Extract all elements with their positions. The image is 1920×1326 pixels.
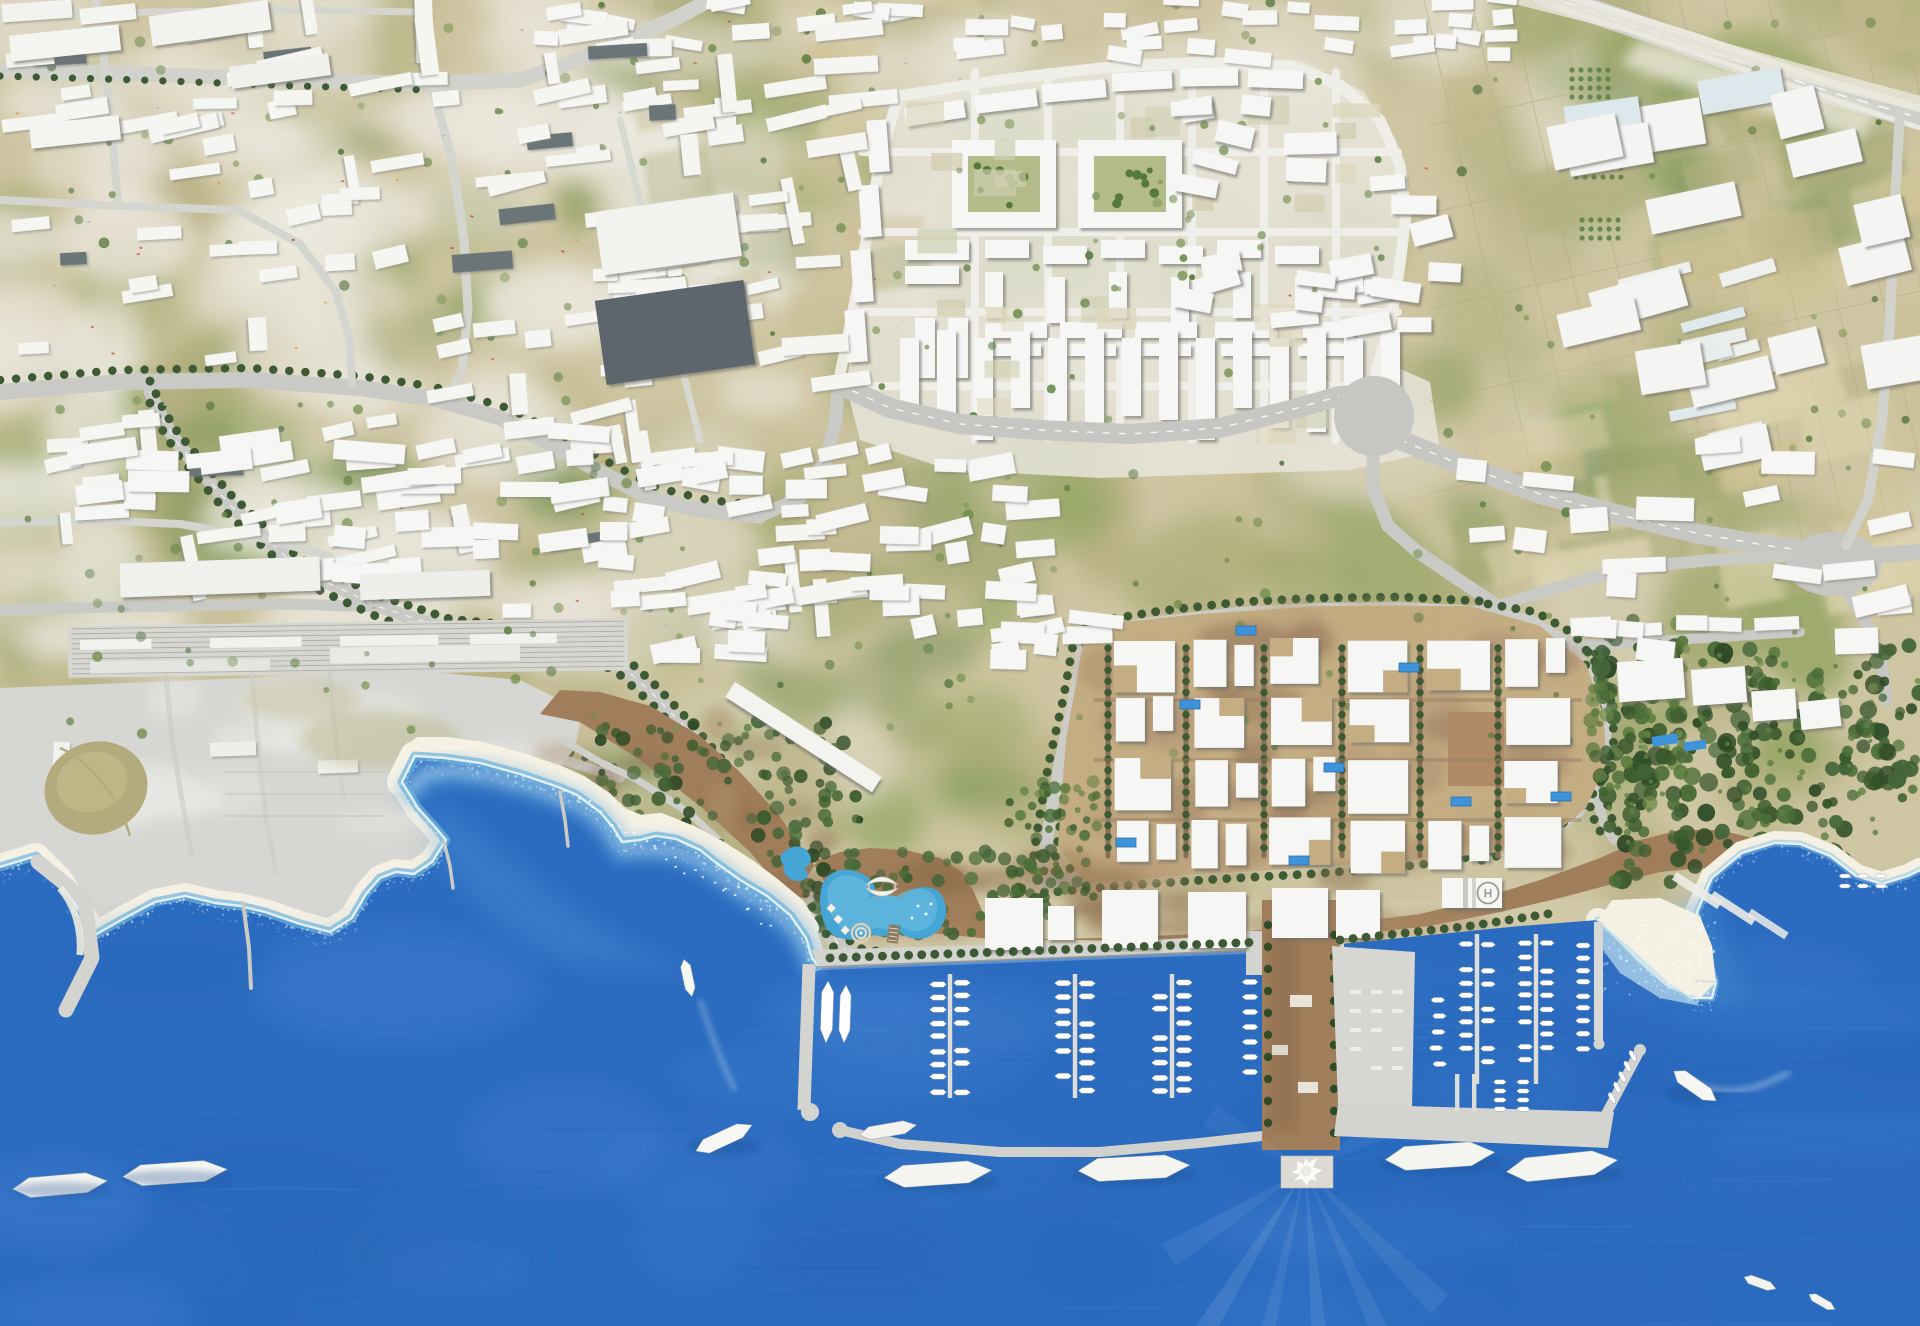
svg-text:H: H — [1484, 887, 1493, 901]
